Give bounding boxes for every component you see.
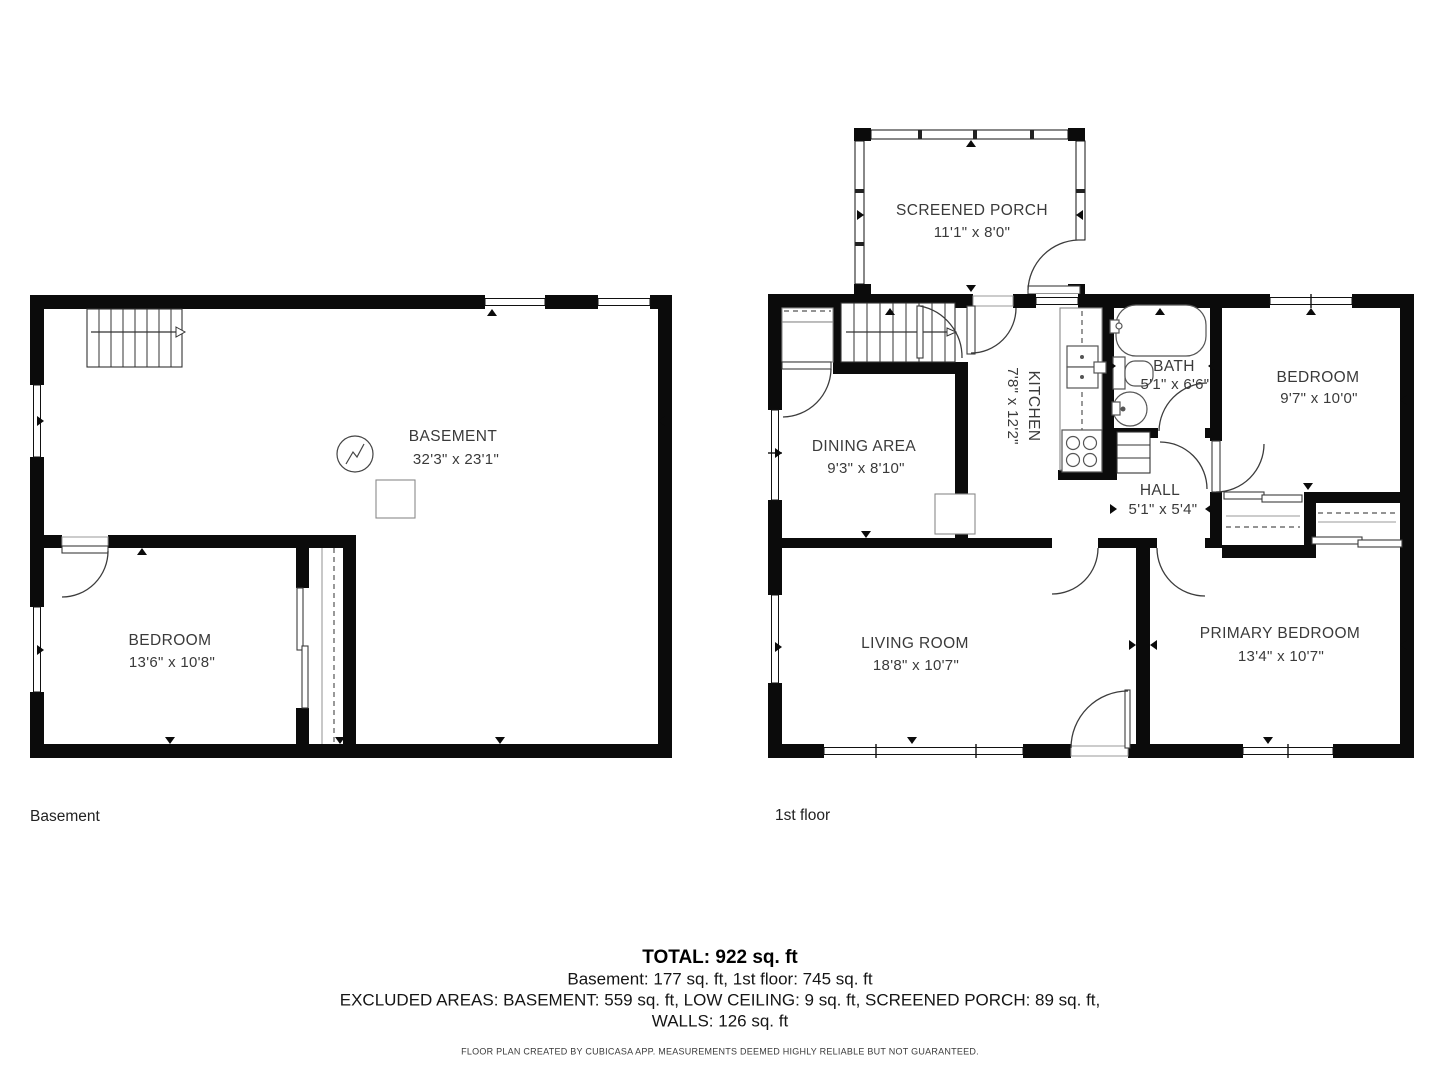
room-dims-living-room: 18'8" x 10'7" [873,657,959,674]
bath-sink-icon [1112,392,1147,426]
summary-excluded: EXCLUDED AREAS: BASEMENT: 559 sq. ft, LO… [340,990,1101,1009]
dining-closet-door [782,362,831,417]
window [824,744,1023,758]
front-door [1071,690,1130,756]
room-label-screened-porch: SCREENED PORCH [896,202,1048,219]
room-dims-dining-area: 9'3" x 8'10" [827,460,905,477]
basement-plan: BASEMENT 32'3" x 23'1" BEDROOM 13'6" x 1… [30,295,672,758]
floor-plan-page: BASEMENT 32'3" x 23'1" BEDROOM 13'6" x 1… [0,0,1440,1080]
room-label-hall: HALL [1140,482,1180,499]
room-label-basement: BASEMENT [409,428,498,445]
window [768,595,782,683]
sliding-door [297,588,308,708]
disclaimer-text: FLOOR PLAN CREATED BY CUBICASA APP. MEAS… [461,1046,979,1056]
floor-plan-canvas: BASEMENT 32'3" x 23'1" BEDROOM 13'6" x 1… [0,0,1440,1080]
basement-caption: Basement [30,808,100,825]
summary-walls: WALLS: 126 sq. ft [652,1011,789,1030]
water-heater-icon [337,436,373,472]
room-label-bath: BATH [1153,358,1195,375]
bedroom-door [1212,441,1264,492]
hall-stair-closet [1117,432,1150,473]
porch-to-kitchen-door [967,296,1016,354]
room-label-dining-area: DINING AREA [812,438,917,455]
refrigerator-icon [935,494,975,534]
first-floor-stairs-icon [841,303,956,362]
bedroom-door [62,537,108,597]
kitchen-to-living-door [1052,548,1098,594]
first-floor-plan: SCREENED PORCH 11'1" x 8'0" DINING AREA … [768,128,1414,758]
room-dims-kitchen: 7'8" x 12'2" [1004,367,1021,445]
area-summary: TOTAL: 922 sq. ft Basement: 177 sq. ft, … [340,947,1101,1056]
basement-stairs-icon [87,309,185,367]
room-label-kitchen: KITCHEN [1025,371,1042,442]
closet-right [1312,513,1402,547]
room-label-basement-bedroom: BEDROOM [129,632,212,649]
room-dims-hall: 5'1" x 5'4" [1129,501,1198,518]
room-dims-bedroom: 9'7" x 10'0" [1280,390,1358,407]
room-dims-screened-porch: 11'1" x 8'0" [934,224,1010,241]
room-label-primary-bedroom: PRIMARY BEDROOM [1200,625,1360,642]
entry-closet [782,308,833,362]
furnace-icon [376,480,415,518]
window [1243,744,1333,758]
hall-to-primary-door [1157,548,1205,596]
porch-door [1028,240,1080,294]
stove-icon [1062,430,1102,472]
room-dims-bath: 5'1" x 6'6" [1141,376,1210,393]
first-floor-caption: 1st floor [775,807,830,824]
window [1036,294,1078,308]
room-dims-basement: 32'3" x 23'1" [413,451,499,468]
room-dims-basement-bedroom: 13'6" x 10'8" [129,654,215,671]
summary-floors: Basement: 177 sq. ft, 1st floor: 745 sq.… [567,969,872,988]
room-dims-primary-bedroom: 13'4" x 10'7" [1238,648,1324,665]
window [485,295,545,309]
summary-total: TOTAL: 922 sq. ft [642,947,798,968]
window [598,295,650,309]
window [1270,294,1352,308]
room-label-bedroom: BEDROOM [1277,369,1360,386]
room-label-living-room: LIVING ROOM [861,635,969,652]
closet-left [1224,492,1302,527]
